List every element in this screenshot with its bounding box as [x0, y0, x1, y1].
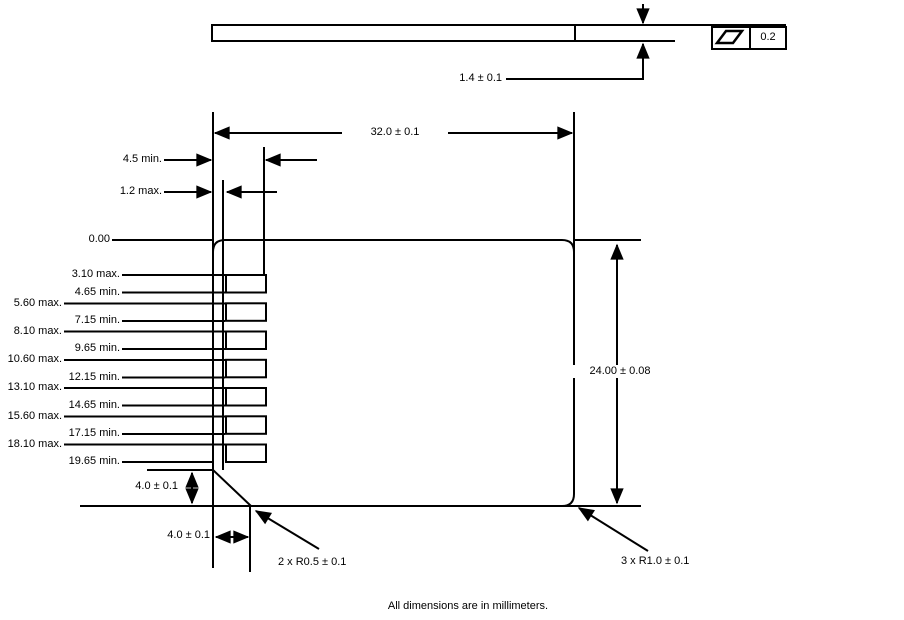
contact-pad — [226, 388, 266, 406]
flatness-feature-control-frame — [712, 27, 786, 49]
front-view-linework — [80, 112, 648, 572]
drawing-linework — [0, 0, 904, 620]
mechanical-drawing: 1.4 ± 0.1 0.2 32.0 ± 0.1 24.00 ± 0.08 4.… — [0, 0, 904, 620]
flatness-parallelogram-icon — [717, 31, 742, 43]
contact-pad — [226, 445, 266, 463]
card-outline — [213, 240, 574, 506]
contact-pad — [226, 360, 266, 378]
contact-pad — [226, 303, 266, 321]
contact-pad — [226, 275, 266, 293]
contact-pad — [226, 416, 266, 434]
contact-pad — [226, 332, 266, 350]
side-view-linework — [212, 4, 786, 79]
